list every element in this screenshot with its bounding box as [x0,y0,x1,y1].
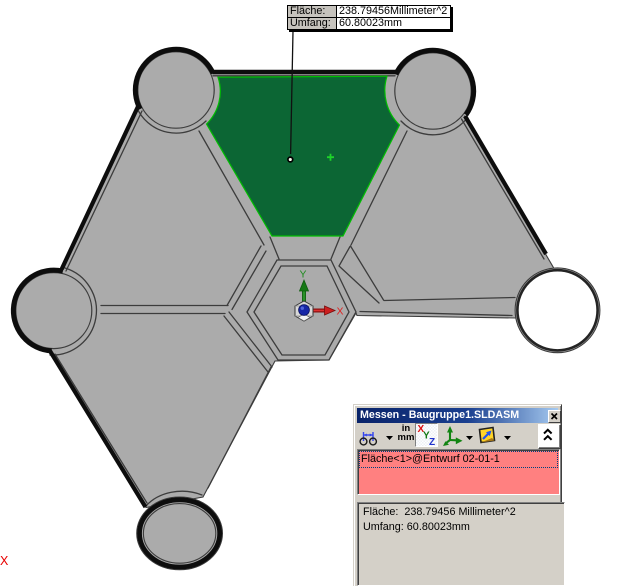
svg-text:Y: Y [300,269,307,281]
svg-text:Z: Z [429,437,435,447]
svg-text:X: X [337,306,344,318]
svg-text:X: X [0,554,9,568]
